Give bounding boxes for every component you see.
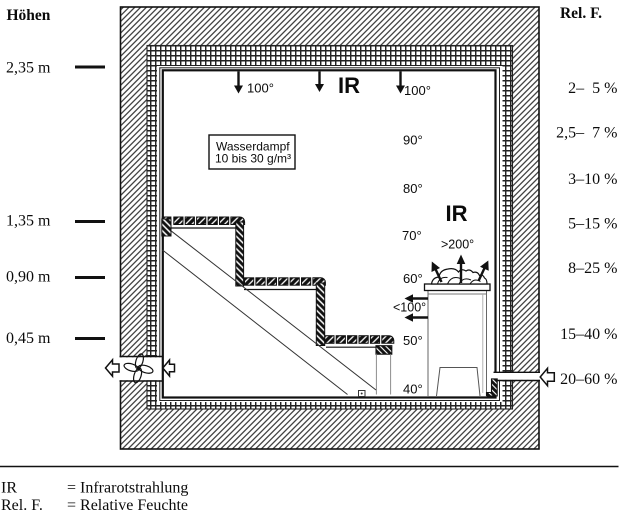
svg-text:2,35 m: 2,35 m (6, 60, 51, 77)
svg-text:10 bis 30 g/m³: 10 bis 30 g/m³ (215, 152, 291, 166)
svg-text:2,5– 7 %: 2,5– 7 % (556, 125, 617, 142)
svg-text:0,90 m: 0,90 m (6, 269, 51, 286)
svg-text:1,35 m: 1,35 m (6, 213, 51, 230)
svg-text:80°: 80° (403, 181, 423, 196)
svg-text:90°: 90° (403, 133, 423, 148)
svg-text:Rel. F.: Rel. F. (1, 497, 43, 514)
svg-text:100°: 100° (247, 81, 274, 96)
svg-text:= Relative Feuchte: = Relative Feuchte (67, 497, 188, 514)
svg-text:70°: 70° (402, 228, 422, 243)
svg-text:Höhen: Höhen (7, 7, 51, 24)
svg-text:100°: 100° (404, 83, 431, 98)
svg-text:3–10 %: 3–10 % (568, 171, 617, 188)
svg-text:5–15 %: 5–15 % (568, 216, 617, 233)
svg-text:20–60 %: 20–60 % (560, 371, 617, 388)
svg-text:8–25 %: 8–25 % (568, 260, 617, 277)
svg-text:50°: 50° (403, 333, 423, 348)
svg-text:Rel. F.: Rel. F. (560, 5, 602, 22)
svg-text:0,45 m: 0,45 m (6, 330, 51, 347)
svg-text:>200°: >200° (441, 238, 474, 252)
svg-text:IR: IR (338, 73, 360, 98)
svg-text:2– 5 %: 2– 5 % (568, 80, 617, 97)
svg-text:60°: 60° (403, 271, 423, 286)
svg-text:IR: IR (446, 201, 468, 226)
svg-text:IR: IR (1, 480, 17, 497)
svg-text:15–40 %: 15–40 % (560, 326, 617, 343)
svg-text:<100°: <100° (393, 301, 426, 315)
svg-text:40°: 40° (403, 382, 423, 397)
svg-text:= Infrarotstrahlung: = Infrarotstrahlung (67, 480, 188, 497)
